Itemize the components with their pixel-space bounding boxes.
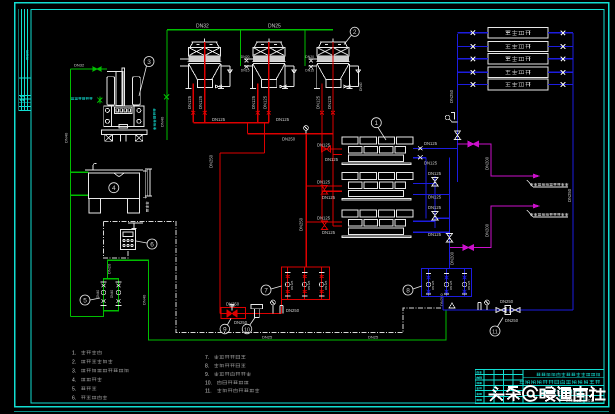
svg-text:11.: 11. [205, 389, 212, 395]
svg-text:DN125: DN125 [307, 280, 311, 290]
svg-text:10: 10 [244, 328, 250, 334]
svg-text:DN250: DN250 [505, 318, 519, 323]
svg-text:DN25: DN25 [368, 335, 379, 340]
svg-text:2.: 2. [72, 360, 76, 366]
svg-text:5.: 5. [72, 387, 76, 393]
svg-text:11: 11 [492, 330, 498, 336]
svg-text:DN250: DN250 [209, 154, 214, 168]
svg-text:5: 5 [83, 298, 87, 305]
svg-text:DN125: DN125 [449, 280, 453, 290]
svg-text:DN250: DN250 [299, 217, 304, 231]
svg-text:DN20: DN20 [241, 55, 250, 59]
svg-text:DN15: DN15 [241, 69, 250, 73]
svg-text:1: 1 [374, 120, 378, 127]
svg-text:DN250: DN250 [449, 89, 454, 103]
svg-text:DN250: DN250 [286, 308, 300, 313]
svg-text:DN125: DN125 [428, 232, 442, 237]
svg-text:DN125: DN125 [324, 280, 328, 290]
svg-text:DN125: DN125 [428, 195, 442, 200]
svg-text:DN125: DN125 [317, 180, 331, 185]
svg-text:DN125: DN125 [187, 95, 192, 109]
svg-text:DN125: DN125 [424, 141, 438, 146]
svg-text:DN125: DN125 [317, 143, 331, 148]
svg-text:DN250: DN250 [282, 137, 296, 142]
svg-text:DN20: DN20 [305, 55, 314, 59]
svg-text:6: 6 [150, 242, 154, 249]
svg-text:7.: 7. [205, 355, 209, 361]
svg-text:DN32: DN32 [196, 24, 209, 30]
svg-text:4: 4 [112, 185, 116, 192]
svg-text:9: 9 [223, 327, 227, 334]
svg-text:DN40: DN40 [142, 294, 147, 305]
svg-text:6.: 6. [72, 396, 76, 402]
svg-text:DN40: DN40 [110, 290, 114, 298]
svg-text:10.: 10. [205, 381, 212, 387]
svg-text:DN125: DN125 [251, 95, 256, 109]
svg-text:DN25: DN25 [262, 335, 273, 340]
svg-text:DN125: DN125 [276, 117, 290, 122]
svg-text:DN125: DN125 [428, 171, 442, 176]
svg-text:DN125: DN125 [198, 95, 203, 109]
svg-text:4.: 4. [72, 378, 76, 384]
svg-text:DN250: DN250 [500, 299, 514, 304]
svg-text:DN125: DN125 [290, 280, 294, 290]
svg-text:DN125: DN125 [212, 117, 226, 122]
svg-text:3: 3 [147, 59, 151, 66]
svg-text:DN40: DN40 [160, 116, 165, 127]
svg-text:9.: 9. [205, 372, 209, 378]
svg-text:2: 2 [353, 29, 357, 36]
svg-text:7: 7 [264, 288, 268, 295]
svg-text:DN200: DN200 [485, 156, 490, 170]
svg-text:DN125: DN125 [316, 95, 321, 109]
svg-text:DN125: DN125 [322, 230, 336, 235]
svg-text:DN250: DN250 [567, 188, 572, 202]
svg-text:DN40: DN40 [96, 290, 100, 298]
svg-text:DN125: DN125 [327, 95, 332, 109]
svg-text:DN25: DN25 [268, 24, 281, 30]
svg-text:DN125: DN125 [424, 161, 438, 166]
svg-text:DN40: DN40 [359, 82, 363, 91]
svg-text:3.: 3. [72, 369, 76, 375]
svg-text:8.: 8. [205, 364, 209, 370]
svg-text:DN20: DN20 [107, 263, 112, 274]
svg-text:DN200: DN200 [450, 251, 455, 265]
svg-text:DN125: DN125 [262, 95, 267, 109]
svg-text:DN200: DN200 [485, 223, 490, 237]
svg-text:DN125: DN125 [428, 205, 442, 210]
svg-text:DN15: DN15 [305, 69, 314, 73]
svg-text:DN125: DN125 [431, 280, 435, 290]
svg-text:DN32: DN32 [74, 63, 85, 68]
svg-text:DN125: DN125 [322, 195, 336, 200]
svg-text:DN40: DN40 [64, 132, 69, 143]
svg-text:DN125: DN125 [325, 157, 339, 162]
svg-text:8: 8 [406, 288, 410, 295]
svg-text:1.: 1. [72, 351, 76, 357]
svg-text:DN125: DN125 [317, 216, 331, 221]
svg-text:DN125: DN125 [467, 280, 471, 290]
